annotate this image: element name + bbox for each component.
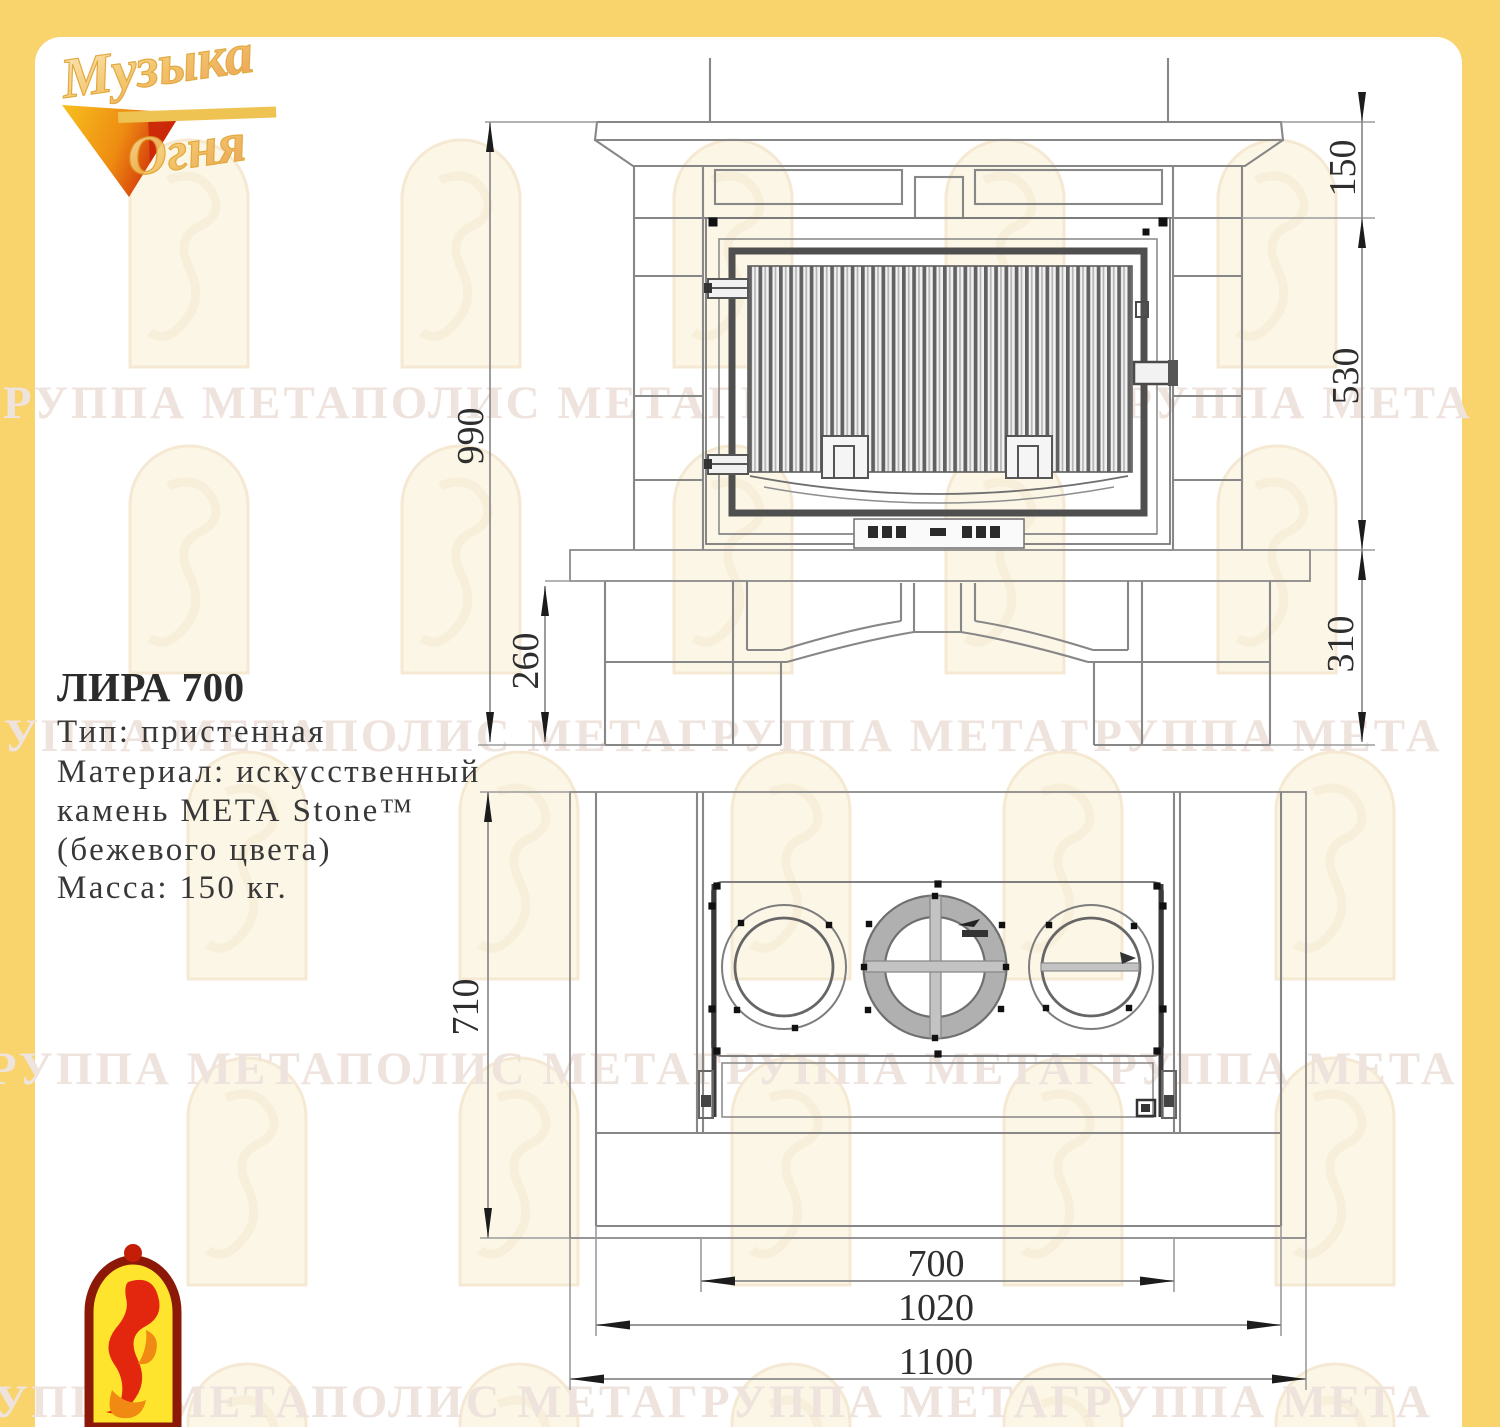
svg-text:ГРУППА МЕТАПОЛИС МЕТАГРУППА МЕ: ГРУППА МЕТАПОЛИС МЕТАГРУППА МЕТАГРУППА М… [0,377,1473,429]
svg-text:260: 260 [505,633,547,690]
svg-text:ГРУППА МЕТАПОЛИС МЕТАГРУППА МЕ: ГРУППА МЕТАПОЛИС МЕТАГРУППА МЕТАГРУППА М… [0,1376,1433,1427]
svg-text:камень МЕТА Stone™: камень МЕТА Stone™ [57,793,414,829]
svg-text:700: 700 [908,1243,965,1285]
svg-text:1020: 1020 [898,1287,974,1329]
svg-text:(бежевого цвета): (бежевого цвета) [57,832,332,868]
svg-text:1100: 1100 [899,1341,974,1383]
svg-text:ЛИРА 700: ЛИРА 700 [57,664,245,710]
svg-text:Тип: пристенная: Тип: пристенная [57,714,326,750]
svg-text:150: 150 [1322,140,1364,197]
svg-text:710: 710 [445,979,487,1036]
svg-text:310: 310 [1320,616,1362,673]
svg-text:990: 990 [450,408,492,465]
svg-text:530: 530 [1325,348,1367,405]
svg-text:ГРУППА МЕТАПОЛИС МЕТАГРУППА МЕ: ГРУППА МЕТАПОЛИС МЕТАГРУППА МЕТАГРУППА М… [0,1043,1458,1095]
svg-text:Материал: искусственный: Материал: искусственный [57,754,481,790]
svg-text:Масса: 150 кг.: Масса: 150 кг. [57,870,288,906]
svg-text:Музыка: Музыка [56,22,257,111]
